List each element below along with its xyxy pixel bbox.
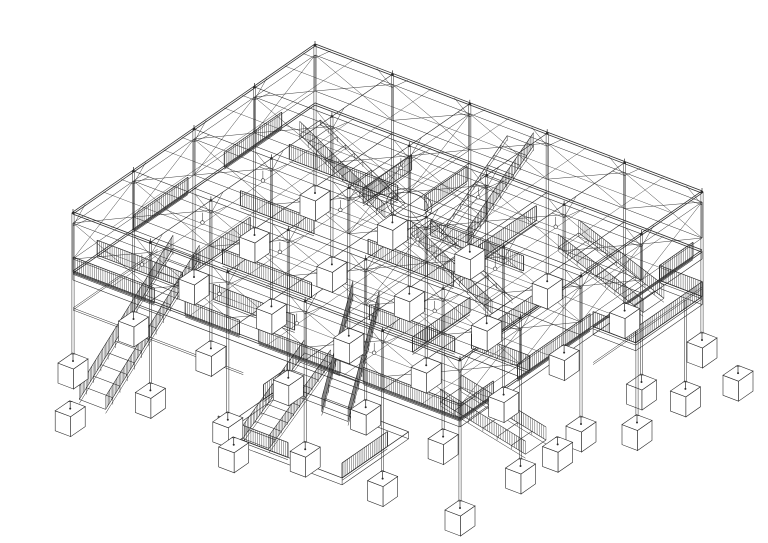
drawing-page bbox=[0, 0, 768, 543]
axonometric-building-drawing bbox=[0, 0, 768, 543]
right-balcony bbox=[593, 265, 702, 350]
